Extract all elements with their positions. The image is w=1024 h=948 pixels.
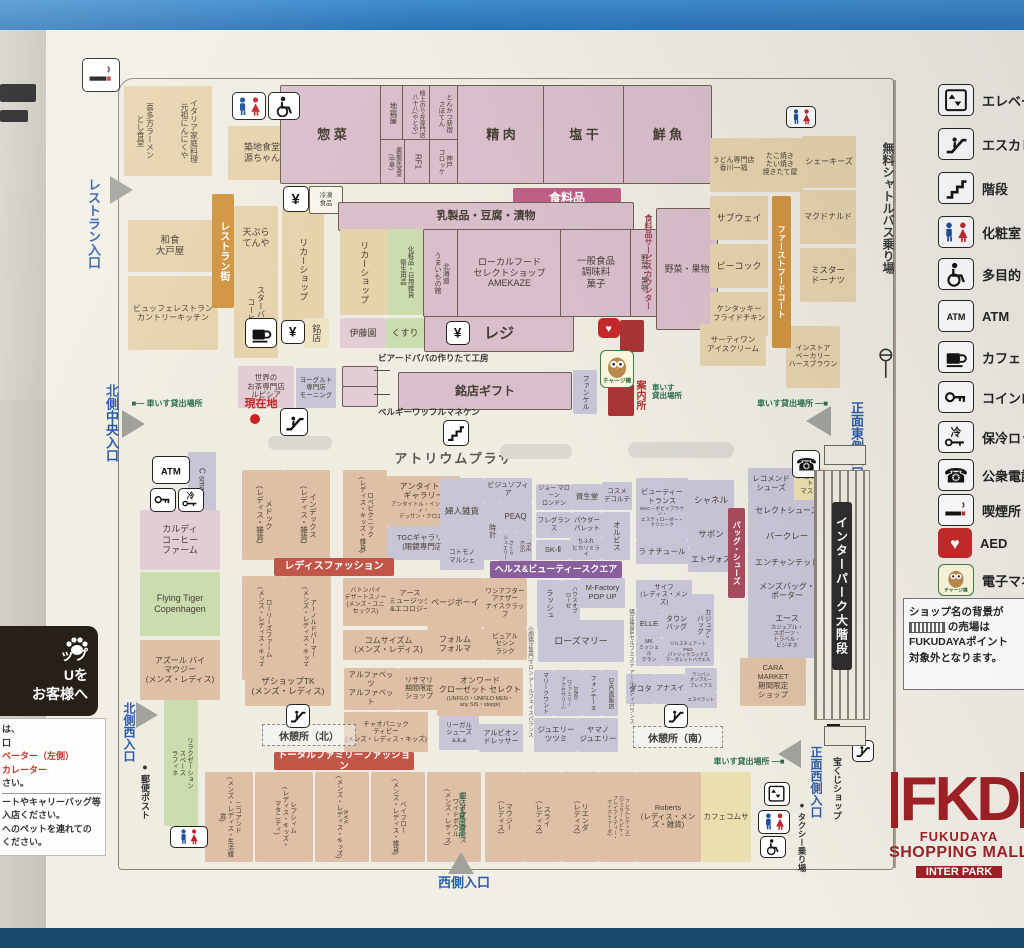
shop-block: 天ぷら てんや [234,206,278,270]
shop-block: ビュッフェレストラン カントリーキッチン [128,276,218,350]
svg-text:ATM: ATM [947,312,966,322]
fkd-logo-word: FKD [891,772,1024,828]
restroom-icon [758,810,790,834]
map-text: 車いす貸出場所 [452,775,464,857]
zone-label-family-fashion: トータルファミリーファッション [274,752,414,770]
wheelchair-icon [268,92,300,120]
stairs-icon [443,420,469,446]
pet-notice-line: カレーター [2,764,101,778]
shop-block: ビジュソフィア [484,478,532,502]
legend-label: 喫煙所 [982,501,1021,520]
shop-block: 北海道 うまいもの館 [423,229,459,317]
map-text: ビアードパパの作りたて工房 [378,354,536,366]
legend-item-coinlocker: コインロッカー [938,381,1024,413]
zone-label-bag-shoes: バッグ・シューズ [728,508,745,598]
sign-frame-bottom [0,928,1024,948]
shop-block: サブウェイ [710,196,768,240]
aed-icon: ♥ [938,528,972,558]
shop-block: アルビオン ドレッサー [479,724,523,752]
shop-block: さくら ジュエリー [499,532,515,562]
svg-text:¥: ¥ [454,326,462,341]
shop-block: メドック (レディス・雑貨) [242,470,285,560]
shop-block: コスメ デコルテ [602,482,632,510]
pet-notice-line: は、 [2,723,101,737]
shop-block: コムサイズム (メンズ・レディス) [343,630,434,660]
shop-block: M-Factory POP UP [580,578,625,608]
legend-item-cafe: カフェ [938,341,1024,373]
note-line: FUKUDAYAポイント [909,636,1008,648]
elevator-icon [938,84,974,116]
aed-icon: ♥ [598,318,620,338]
shop-block: ザショップTK (メンズ・レディス) [245,666,331,706]
paw-icon [64,634,90,658]
entrance-arrow [122,410,145,438]
shop-block: ローリーズファーム (メンズ・レディス・キッズ) [242,576,285,680]
charge-icon: チャージ機 [938,564,974,596]
shop-block: ジョー マローン ロンドン [536,484,572,510]
map-pill [628,442,734,458]
shop-block: 資生堂 [572,484,602,510]
shop-block: ニコアンド (メンズ・レディス・生活雑貨) [205,772,253,862]
escalator-icon [938,128,974,160]
entrance-arrow [110,176,133,204]
stairs-icon [938,172,974,204]
shop-block: リカーショップ [282,208,324,330]
shop-block: インデックス (レディス・雑貨) [285,470,330,560]
frame-mark [0,110,28,122]
pet-notice-body: は、口ベーター（左側）カレーターさい。ートやキャリーバッグ等入店ください。へのペ… [0,718,106,856]
svg-text:ATM: ATM [161,466,181,477]
smoking-icon [82,58,120,92]
entrance-arrow [778,740,801,768]
svg-text:冷: 冷 [187,491,195,501]
shop-block: シェーキーズ [802,136,856,188]
shop-block: フレア(レディス) (ジェラートピケ・ フレイアイディー・ マイストラーダ) [599,772,635,862]
shop-block: 野菜・果物 [656,208,718,330]
shop-block: タウン バッグ [662,610,691,638]
coinlocker-icon [938,381,974,413]
legend-item-charge: チャージ機電子マネーチャージ [938,564,1024,596]
shop-block: 銘店 [303,318,329,348]
shop-block: THE KISS [515,532,532,562]
legend-item-elevator: エレベーター [938,84,1024,116]
gift-area: 銘店ギフト [398,372,572,410]
shop-block: マウジー (レディス) [485,772,523,862]
shop-block: 伊藤園 [340,318,386,348]
shop-block: フレグランス [536,512,572,538]
post-box-label: ● 郵便ポスト [136,746,150,836]
pet-notice-line: ートやキャリーバッグ等 [2,793,101,810]
legend-item-atm: ATMATM [938,300,1024,332]
shop-block [342,366,378,387]
shop-block: ハウスオブ ローゼ [561,580,580,620]
map-text: 小顔矯正専門サロン アールフェイスバランス [521,608,533,756]
map-pill [268,436,332,450]
coinlocker-icon [150,488,176,512]
current-location-label: 現在地 [238,398,284,412]
legend-label: エレベーター [982,91,1024,110]
pet-notice-line: ください。 [2,836,101,850]
shop-block: アズール バイ マウジー (メンズ・レディス) [140,640,220,700]
coldlocker-icon: 冷 [178,488,204,512]
shop-block: 神戸 コロッケ [429,139,459,184]
shop-block: Flying Tiger Copenhagen [140,572,220,636]
legend-label: 電子マネーチャージ [982,571,1024,590]
entrance-label-north-west: 北側西入口 [118,682,135,782]
shop-block: DHC直販店 [601,670,618,716]
coldlocker-icon: 冷 [938,421,974,453]
map-text: ベルギーワッフルマネケン [378,408,536,420]
map-line [374,370,390,371]
entrance-label-north-center: 北側中央入口 [100,362,118,484]
elevator-icon [764,782,790,806]
shop-block: ビューティー トランスMAC・ボビイブラウン・ エスティローダー・ クリニーク [636,478,688,540]
escalator-icon [280,408,308,436]
legend-item-coldlocker: 冷保冷ロッカー [938,421,1024,453]
sign-frame-top [0,0,1024,30]
entrance-arrow [136,702,158,728]
entrance-label-restaurant: レストラン入口 [80,148,100,298]
shop-block: ピーコック [710,244,768,288]
pet-notice-line: ベーター（左側） [2,750,101,764]
shop-block: スライ (レディス) [523,772,561,862]
shop-block: ヨーグルト 専門店 モーニング [296,368,336,408]
shuttle-bus-label: 無料シャトルバス乗り場 [876,72,894,344]
yen-icon: ¥ [283,186,309,212]
shop-block: リサマリ 期間限定 ショップ [398,668,440,710]
legend-label: 公衆電話 [982,466,1024,485]
note-line: の売場は [948,621,990,633]
dept-fresh-fish: 鮮 魚 [623,85,712,184]
shop-block: マクドナルド [800,190,856,244]
zone-label-fastfood-court: ファーストフードコート [772,196,791,348]
hatch-swatch [909,622,945,633]
map-rectline [824,726,866,746]
shop-block: カルディ コーヒー ファーム [140,510,220,570]
legend-label: 保冷ロッカー [982,428,1024,447]
shop-block: イタリア家庭料理 元祖にんにくや [166,86,212,176]
svg-text:チャージ機: チャージ機 [603,377,631,385]
dept-salted-fish: 塩 干 [543,85,625,184]
legend-label: ATM [982,309,1009,324]
pet-notice-line: さい。 [2,777,101,791]
cafe-icon [938,341,974,373]
shop-block: ヤマノ ジュエリー [578,718,618,752]
shop-block: サーティワン アイスクリーム [700,324,766,366]
shop-block: 廣龍家常菜 (中華) [380,139,407,184]
legend-item-smoking: 喫煙所 [938,494,1024,526]
zone-label-ladies-fashion: レディスファッション [274,558,394,576]
shop-block: ジルスチュアート P&D パトリックコックス マーガレットハウエル [662,638,714,666]
restroom-icon [786,106,816,128]
legend-item-aed: ♥AED [938,528,1024,558]
rest-area-north: 休憩所（北） [262,724,356,746]
shop-block: CARA MARKET 期間限定 ショップ [740,658,806,706]
shop-block: Roberts (レディス・メンズ・雑貨) [635,772,701,862]
map-line [374,394,390,395]
entrance-label-west: 西側入口 [428,876,500,894]
shop-block: パウダー パレット [572,512,602,538]
entrance-arrow [806,406,831,436]
legend-label: AED [980,536,1007,551]
wheelchair-icon [760,836,786,858]
phone-icon: ☎ [938,459,974,491]
shop-block: 婦人雑貨 [440,478,484,544]
shop-block: オルビス [602,512,630,560]
legend-label: エスカレーター [982,135,1024,154]
shop-block: SK-Ⅱ [536,540,570,560]
shop-block: 化粧品・日用雑貨 衛生用品 [388,229,423,315]
restroom-icon [232,92,266,120]
atm-icon: ATM [938,300,974,332]
yen-icon: ¥ [281,320,305,344]
map-pill [500,444,572,459]
shop-block: ちふれ ヒカリミライ [570,538,602,560]
food-service-counter-label: 食料品サービスカウンター [637,196,652,328]
shop-block: くすり [386,318,424,348]
shop-block: アルファベッツ アルファベット [344,668,398,710]
escalator-icon [286,704,310,728]
shop-block: とんかつ新宿 さぼてん [429,85,459,142]
restroom-icon [170,826,208,848]
shop-block: ジュエリー ツツミ [534,718,578,752]
shop-block: ページボーイ [427,578,483,628]
legend-item-phone: ☎公衆電話 [938,459,1024,491]
map-text: 車いす 貸出場所 [652,384,708,408]
frame-mark [0,84,36,102]
legend-label: 多目的トイレ [982,265,1024,284]
shop-block: ELLE [636,610,662,638]
legend-label: 階段 [982,179,1008,198]
shop-block: アーノルドパーマー (メンズ・レディス・キッズ) [285,576,331,680]
shop-block: マリークワント [534,670,554,716]
busstop-icon [876,346,896,382]
shop-block: ファンケル [573,370,597,414]
zone-label-health-beauty: ヘルス&ビューティースクエア [490,561,622,578]
wheelchair-icon [938,258,974,290]
shop-block: ラ ナチュール [636,540,688,564]
legend-label: 化粧室 [982,223,1021,242]
shop-block: RF1 [404,139,432,184]
shop-block: MK ミッシェル クラン [636,638,662,666]
legend-item-wheelchair: 多目的トイレ [938,258,1024,290]
shop-block: PEAQ [499,502,532,532]
shop-block: コトモノ マルシェ [440,544,484,570]
pet-notice-line: へのペットを連れての [2,823,101,837]
legend-label: コインロッカー [982,388,1024,407]
mall-map-sign-photo: 喜多方ラーメン とし食堂イタリア家庭料理 元祖にんにくや築地食堂 源ちゃん和食 … [0,0,1024,948]
shop-block: ロペピクニック (レディス・キッズ・雑貨) [343,470,387,560]
restroom-icon [938,216,974,248]
dept-meat: 精 肉 [457,85,545,184]
shop-block: フォルム フォルマ [427,628,483,660]
shop-block: 乳製品・豆腐・漬物 [338,202,634,231]
legend-item-restroom: 化粧室 [938,216,1024,248]
pet-notice-header: ップ Uを お客様へ [0,626,98,716]
svg-text:チャージ機: チャージ機 [944,586,968,593]
shop-block: a.v.v. (メンズ・レディス・キッズ) [315,772,369,862]
shop-block: ベイフロー (メンズ・レディス・雑貨) [371,772,425,862]
map-dot [250,414,260,424]
shop-block: たこ焼き たい焼き 焼きたて屋 [757,138,803,192]
shop-block: アナスイ [655,674,685,704]
legend-item-escalator: エスカレーター [938,128,1024,160]
shop-block: ランバン オンブルー プレイアス [685,668,717,692]
taxi-stand-label: ● タクシー乗り場 [794,786,806,886]
shop-block: レプシィム (レディス・キッズ・ マタニティ) [255,772,313,862]
charge-icon: チャージ機 [600,350,634,388]
shop-block: リーガル シューズ a.k.a [439,716,479,750]
shop-block: ローズマリー [538,620,624,662]
shop-block: JUNO (ファミリー アクセサリー) [554,670,582,716]
shop-block: 一般食品 調味料 菓子 [560,229,632,317]
rest-area-south: 休憩所（南） [633,726,723,748]
note-line: ショップ名の背景が [909,606,1004,618]
lottery-shop-label: 宝くじショップ [827,740,842,836]
cafe-icon [245,318,277,348]
shop-block: インストア ベーカリー ハースブラウン [786,326,840,388]
pet-notice-line: 口 [2,737,101,751]
shop-block: 極上のり弁専門店 八十八(やとや) [402,85,432,142]
escalator-icon [664,704,688,728]
entrance-label-front-west: 正面西側入口 [807,728,822,836]
svg-text:¥: ¥ [292,192,301,208]
shop-block: ミスター ドーナツ [800,248,856,302]
map-rectline [824,445,866,465]
shop-block: ローカルフード セレクトショップ AMEKAZE [457,229,562,317]
shop-block: 喜多方ラーメン とし食堂 [124,86,166,176]
shop-block: オンワード クローゼット セレクト(UNFILO・UNFILO MEN・ any… [437,668,523,716]
grand-staircase-label: インターパーク大階段 [832,502,852,670]
pet-notice-line: 入店ください。 [2,809,101,823]
shop-block: エスペラント [685,692,717,708]
svg-text:♥: ♥ [950,536,959,553]
svg-text:冷: 冷 [951,426,962,439]
atm-icon: ATM [152,456,190,484]
shop-block: うどん専門店 香川一福 [710,138,757,192]
point-exclusion-note: ショップ名の背景が の売場は FUKUDAYAポイント 対象外となります。 [903,598,1024,690]
yen-icon: ¥ [446,321,470,345]
shop-block [342,386,378,407]
shop-block: リラクゼーション スペース ラフィネ [164,700,198,826]
legend-item-stairs: 階段 [938,172,1024,204]
shop-block: チャオパニック ティピー (メンズ・レディス・キッズ) [344,712,428,752]
shop-block: リエンダ (レディス) [561,772,599,862]
smoking-icon [938,494,974,526]
shop-block: バトンバイ デザートスノー (メンズ・ユニセックス) [343,578,388,626]
legend-label: カフェ [982,348,1021,367]
fkd-logo-park: INTER PARK [916,866,1002,878]
shop-block: フォンテーヌ [582,670,601,716]
entrance-arrow [448,852,474,874]
shop-block: 時計 [484,502,499,560]
shop-block: カフェコムサ [701,772,751,862]
svg-text:☎: ☎ [944,465,969,487]
svg-text:¥: ¥ [289,325,297,340]
shop-block: サイフ (レディス・メンズ) [636,580,692,610]
note-line: 対象外となります。 [909,652,1002,664]
zone-label-restaurant-street: レストラン街 [212,194,234,308]
shop-block: レコメンド シューズ [748,468,794,500]
shop-block: 和食 大戸屋 [128,220,212,272]
svg-text:♥: ♥ [606,323,612,335]
shop-block: リカーショップ [340,229,388,315]
fkd-logo-mall: SHOPPING MALL [884,844,1024,862]
fkd-logo: FKD FUKUDAYA SHOPPING MALL INTER PARK [884,772,1024,880]
